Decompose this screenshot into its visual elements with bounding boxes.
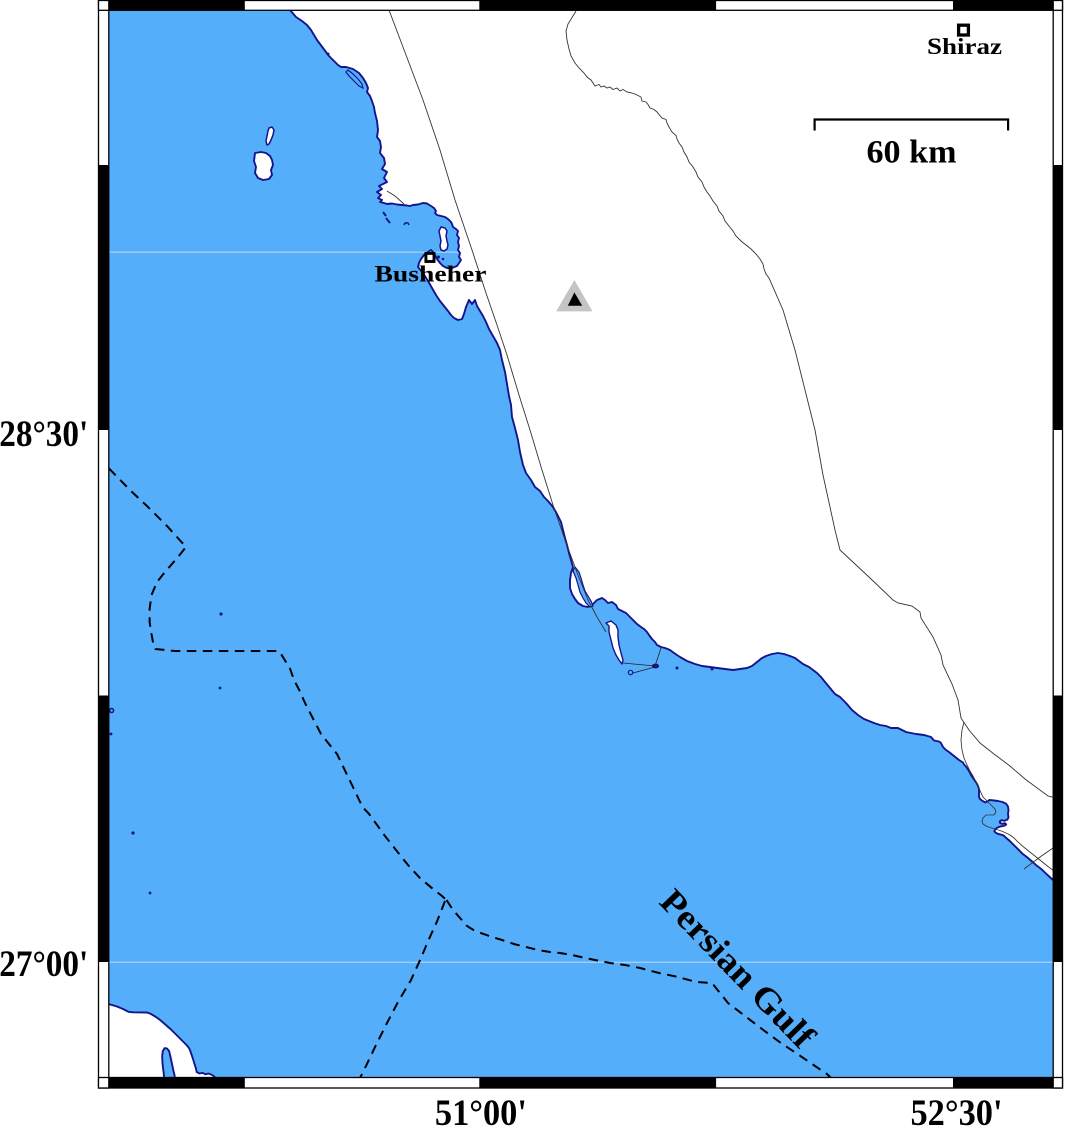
svg-text:Busheher: Busheher bbox=[375, 262, 487, 287]
svg-text:28°30': 28°30' bbox=[0, 414, 88, 455]
svg-text:51°00': 51°00' bbox=[435, 1093, 527, 1126]
svg-text:52°30': 52°30' bbox=[911, 1093, 1003, 1126]
svg-text:60 km: 60 km bbox=[867, 134, 957, 170]
svg-text:27°00': 27°00' bbox=[0, 944, 88, 985]
svg-text:Shiraz: Shiraz bbox=[927, 34, 1002, 59]
